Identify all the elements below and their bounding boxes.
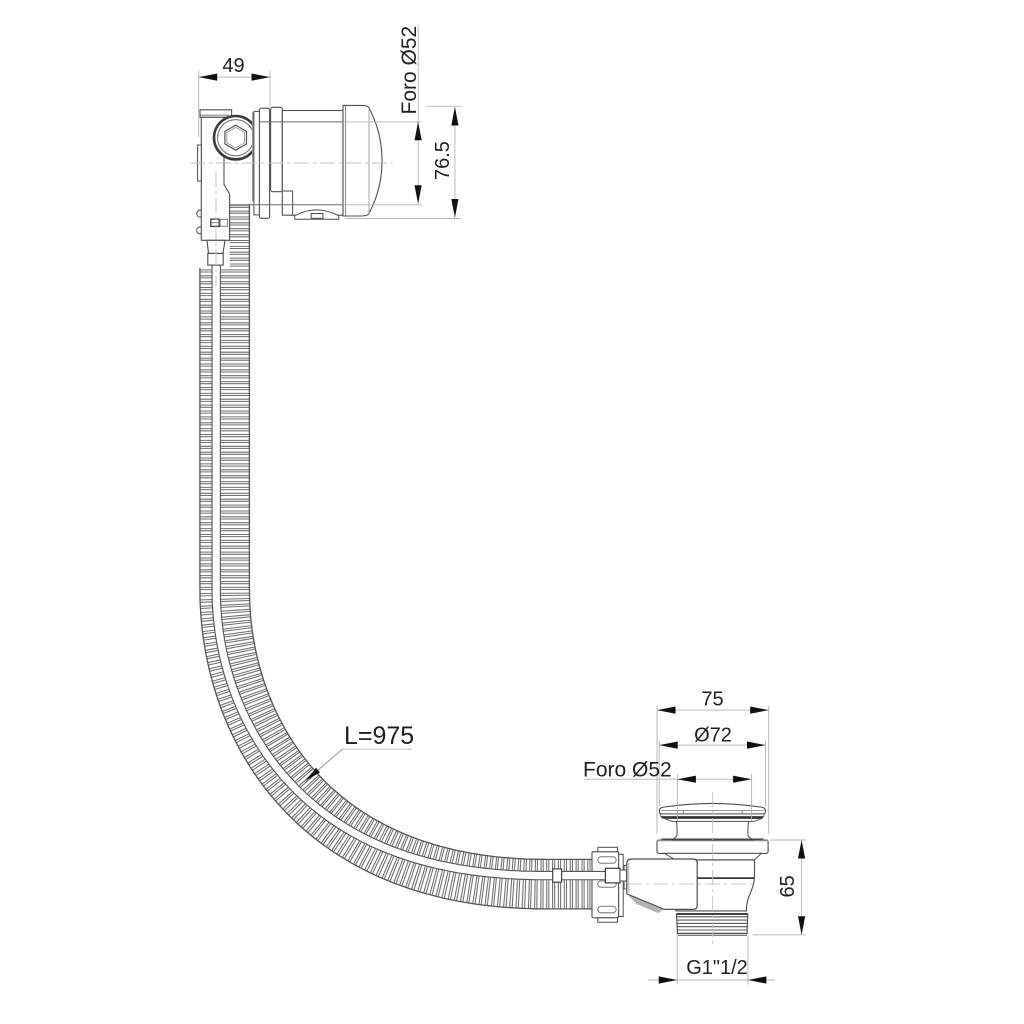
svg-text:L=975: L=975 [344, 722, 414, 750]
svg-text:65: 65 [777, 875, 799, 897]
svg-text:Ø72: Ø72 [694, 725, 732, 747]
svg-text:Foro Ø52: Foro Ø52 [398, 26, 421, 115]
svg-text:49: 49 [222, 55, 244, 77]
svg-text:G1"1/2: G1"1/2 [686, 957, 748, 979]
svg-text:75: 75 [701, 689, 723, 711]
svg-text:Foro Ø52: Foro Ø52 [583, 759, 672, 782]
svg-text:76.5: 76.5 [432, 141, 454, 180]
